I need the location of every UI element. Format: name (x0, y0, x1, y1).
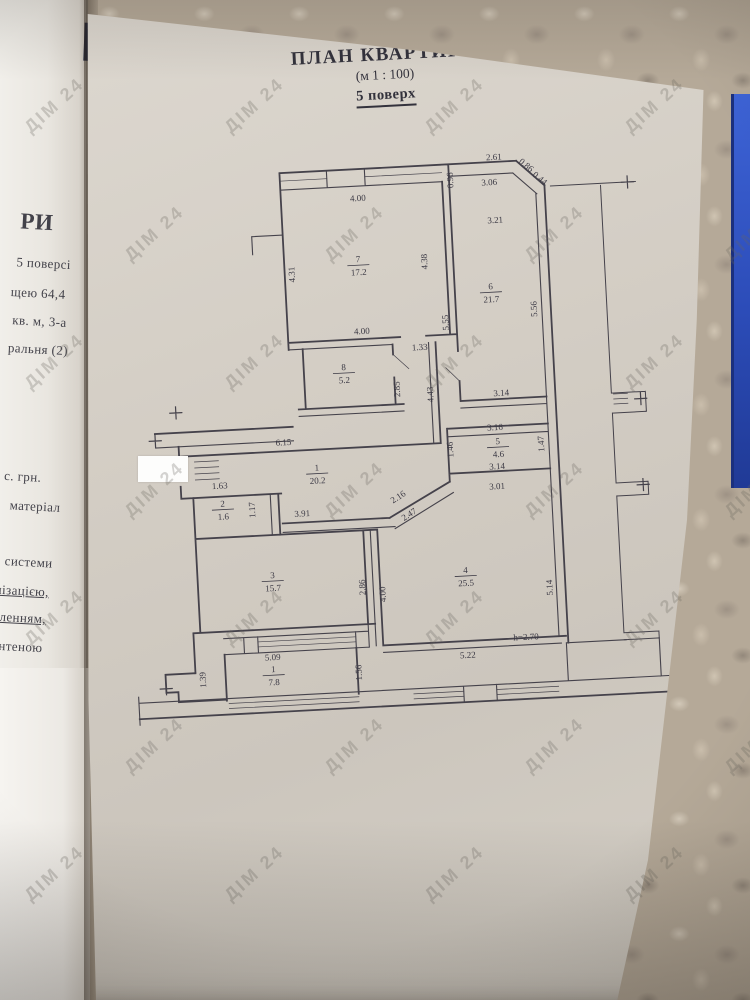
room-label: 4.6 (493, 449, 505, 460)
room-labels-layer: 717.285.2621.754.6120.221.6315.7425.517.… (199, 247, 522, 690)
survey-cross-ticks (135, 176, 661, 696)
dimension-label: 5.56 (528, 300, 539, 317)
dimension-label: 1.46 (445, 441, 456, 458)
dimension-label: 2.61 (486, 152, 502, 163)
room-label-fraction-line (263, 675, 285, 676)
redaction-box (138, 456, 188, 482)
blue-object (731, 94, 750, 488)
dimension-label: 1.63 (212, 480, 229, 491)
dimension-label: 0.44 (531, 169, 550, 187)
room-label: 25.5 (458, 578, 475, 589)
dimension-label: 4.43 (425, 386, 436, 403)
room-label: 8 (341, 362, 347, 372)
room-label: 1 (314, 463, 319, 473)
room-label: 7 (356, 254, 362, 264)
left-page-text-line: лізацією, (0, 582, 49, 601)
left-page-text-line: кв. м, 3-а (12, 312, 67, 331)
left-page-text-line: РИ (20, 208, 54, 236)
room-label-fraction-line (480, 292, 502, 293)
room-label: 6 (488, 281, 494, 291)
floor-plan-drawing: 717.285.2621.754.6120.221.6315.7425.517.… (80, 125, 690, 735)
plan-floor: 5 поверх (356, 85, 417, 108)
dimension-label: 3.21 (487, 215, 503, 226)
room-label: 21.7 (483, 294, 500, 305)
room-label-fraction-line (333, 372, 355, 373)
dimension-label: 2.86 (357, 579, 368, 596)
room-label: 7.8 (268, 677, 280, 688)
walls-detail (180, 164, 643, 710)
dimension-label: 1.47 (536, 435, 547, 452)
room-label: 5 (495, 436, 501, 446)
left-page-text-line: ральня (2) (7, 340, 68, 359)
dimension-label: 4.31 (286, 267, 297, 283)
room-label: 20.2 (309, 475, 325, 486)
dimension-label: 1.33 (412, 342, 429, 353)
room-label: 5.2 (338, 375, 350, 386)
room-label-fraction-line (212, 509, 234, 510)
walls-secondary (112, 154, 675, 725)
room-label: 15.7 (265, 583, 282, 594)
room-label-fraction-line (306, 473, 328, 474)
left-page-text-line: с. грн. (4, 468, 42, 486)
left-page-text-line: антеною (0, 638, 43, 657)
dimension-label: 3.16 (487, 422, 504, 433)
dimension-label: 4.38 (419, 253, 430, 270)
walls-main (112, 154, 674, 719)
dimension-label: 0.86 (517, 156, 536, 174)
terrace-rails (550, 182, 659, 643)
dimension-label: 3.91 (294, 508, 310, 519)
left-page-text-line: матеріал (9, 497, 60, 516)
dimension-labels-layer: 4.000.962.610.860.443.063.214.314.385.55… (143, 149, 575, 690)
room-label: 4 (463, 565, 469, 575)
dimension-label: 0.96 (445, 172, 456, 189)
plan-sheet: ПЛАН КВАРТИРИ (м 1 : 100) 5 поверх 717.2… (0, 0, 750, 1000)
room-label: 3 (270, 570, 276, 580)
dimension-label: 5.14 (544, 579, 555, 596)
photo-scene: РИ5 поверсіщею 64,4кв. м, 3-аральня (2)с… (0, 0, 750, 1000)
dimension-label: 4.00 (350, 193, 367, 204)
dimension-label: 1.17 (247, 501, 258, 518)
dimension-label: 1.56 (353, 664, 364, 681)
room-label: 1 (271, 664, 276, 674)
dimension-label: 2.16 (389, 488, 408, 505)
room-label: 2 (220, 498, 225, 508)
left-page-text-line: тленням, (0, 609, 46, 628)
left-page-text-line: 5 поверсі (16, 254, 71, 273)
left-page-text-line: системи (4, 553, 53, 571)
dimension-label: h=2.70 (513, 631, 539, 642)
dimension-label: 4.00 (354, 326, 371, 337)
room-label: 1.6 (217, 511, 229, 522)
dimension-label: 2.85 (391, 381, 402, 398)
room-label-fraction-line (347, 265, 369, 266)
dimension-label: 5.55 (440, 314, 451, 331)
room-label-fraction-line (262, 581, 284, 582)
left-page: РИ5 поверсіщею 64,4кв. м, 3-аральня (2)с… (0, 0, 88, 1000)
dimension-label: 5.22 (460, 650, 476, 661)
dimension-label: 3.06 (481, 177, 498, 188)
dimension-label: 3.14 (489, 461, 506, 472)
dimension-label: 4.00 (377, 586, 388, 603)
room-label: 17.2 (351, 267, 367, 278)
dimension-label: 3.14 (493, 387, 510, 398)
dimension-label: 3.01 (489, 481, 505, 492)
dimension-label: 1.39 (197, 671, 208, 688)
room-label-fraction-line (455, 575, 477, 576)
room-label-fraction-line (487, 447, 509, 448)
dimension-label: 5.09 (265, 652, 282, 663)
dimension-label: 6.15 (275, 437, 292, 448)
left-page-text-line: щею 64,4 (10, 284, 65, 303)
